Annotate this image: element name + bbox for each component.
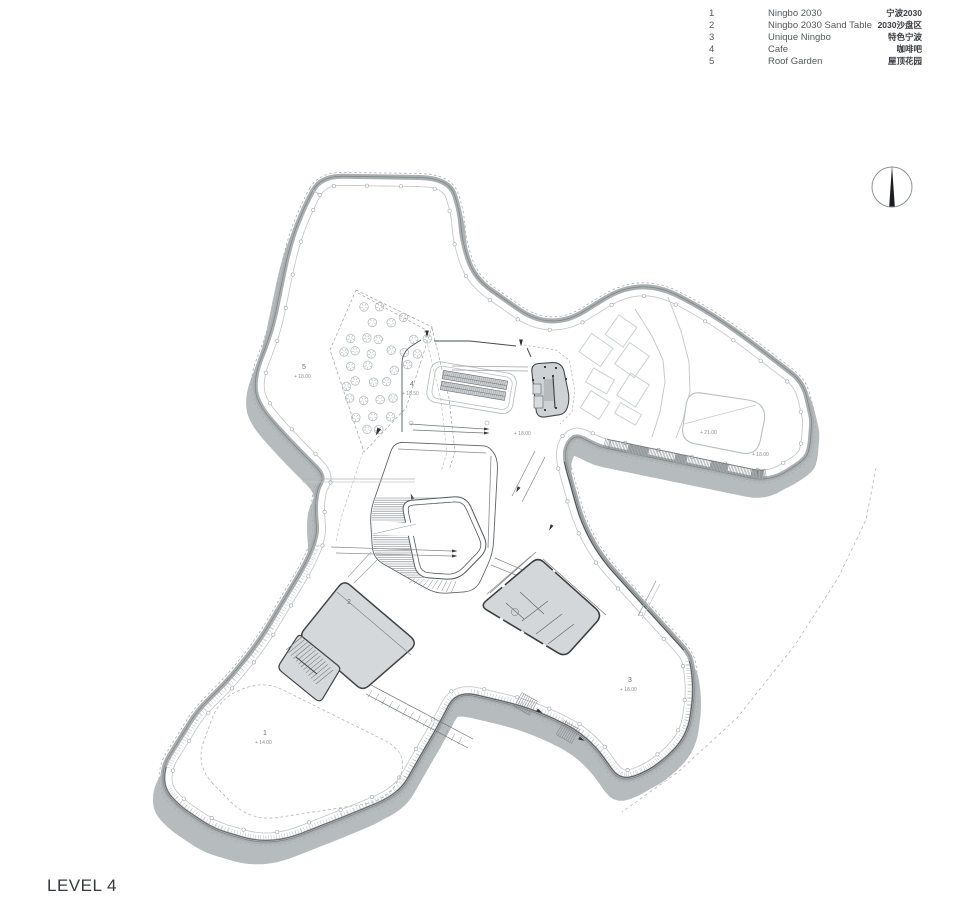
svg-text:Cafe: Cafe	[768, 44, 788, 55]
svg-text:+ 18.00: + 18.00	[752, 452, 769, 458]
svg-text:+ 18.00: + 18.00	[514, 431, 531, 437]
svg-text:1: 1	[263, 730, 267, 737]
svg-text:2: 2	[347, 599, 351, 606]
svg-text:LEVEL 4: LEVEL 4	[47, 876, 117, 895]
svg-text:3: 3	[709, 32, 714, 43]
svg-text:+ 14.00: + 14.00	[255, 740, 272, 746]
svg-text:Ningbo 2030: Ningbo 2030	[768, 8, 822, 19]
svg-text:5: 5	[302, 364, 306, 371]
svg-text:Unique Ningbo: Unique Ningbo	[768, 32, 831, 43]
svg-text:1: 1	[709, 8, 714, 19]
svg-text:+ 21.00: + 21.00	[700, 430, 717, 436]
svg-text:+ 18.50: + 18.50	[402, 391, 419, 397]
svg-text:5: 5	[709, 56, 714, 67]
svg-text:Ningbo 2030 Sand Table: Ningbo 2030 Sand Table	[768, 20, 872, 31]
svg-text:特色宁波: 特色宁波	[888, 32, 923, 42]
svg-text:咖啡吧: 咖啡吧	[896, 44, 922, 54]
svg-text:4: 4	[410, 381, 414, 388]
svg-text:+ 18.00: + 18.00	[294, 374, 311, 380]
svg-text:宁波2030: 宁波2030	[886, 8, 922, 18]
svg-text:2030沙盘区: 2030沙盘区	[878, 20, 923, 30]
svg-text:2: 2	[709, 20, 714, 31]
svg-text:3: 3	[628, 677, 632, 684]
svg-text:Roof Garden: Roof Garden	[768, 56, 822, 67]
svg-text:屋顶花园: 屋顶花园	[888, 56, 922, 66]
svg-text:4: 4	[709, 44, 714, 55]
svg-text:+ 18.00: + 18.00	[620, 687, 637, 693]
